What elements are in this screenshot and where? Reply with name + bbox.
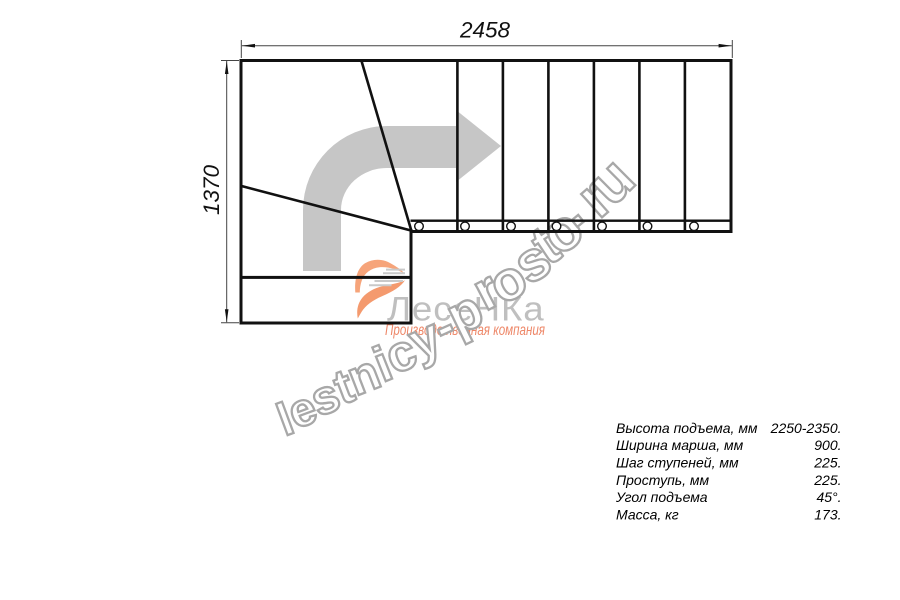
svg-text:Шаг ступеней, мм: Шаг ступеней, мм: [616, 455, 739, 471]
svg-text:225.: 225.: [813, 455, 841, 471]
svg-text:45°.: 45°.: [816, 489, 841, 505]
svg-text:Ширина марша, мм: Ширина марша, мм: [616, 437, 744, 453]
svg-text:225.: 225.: [813, 472, 841, 488]
svg-text:Высота подъема, мм: Высота подъема, мм: [616, 420, 758, 436]
svg-text:2458: 2458: [459, 18, 511, 43]
svg-text:Проступь, мм: Проступь, мм: [616, 472, 710, 488]
svg-text:1370: 1370: [199, 164, 224, 215]
svg-text:900.: 900.: [814, 437, 841, 453]
svg-text:Масса, кг: Масса, кг: [616, 506, 679, 522]
svg-text:173.: 173.: [814, 506, 841, 522]
svg-text:Угол подъема: Угол подъема: [615, 489, 708, 505]
svg-text:2250-2350.: 2250-2350.: [770, 420, 842, 436]
svg-text:u: u: [574, 144, 647, 217]
